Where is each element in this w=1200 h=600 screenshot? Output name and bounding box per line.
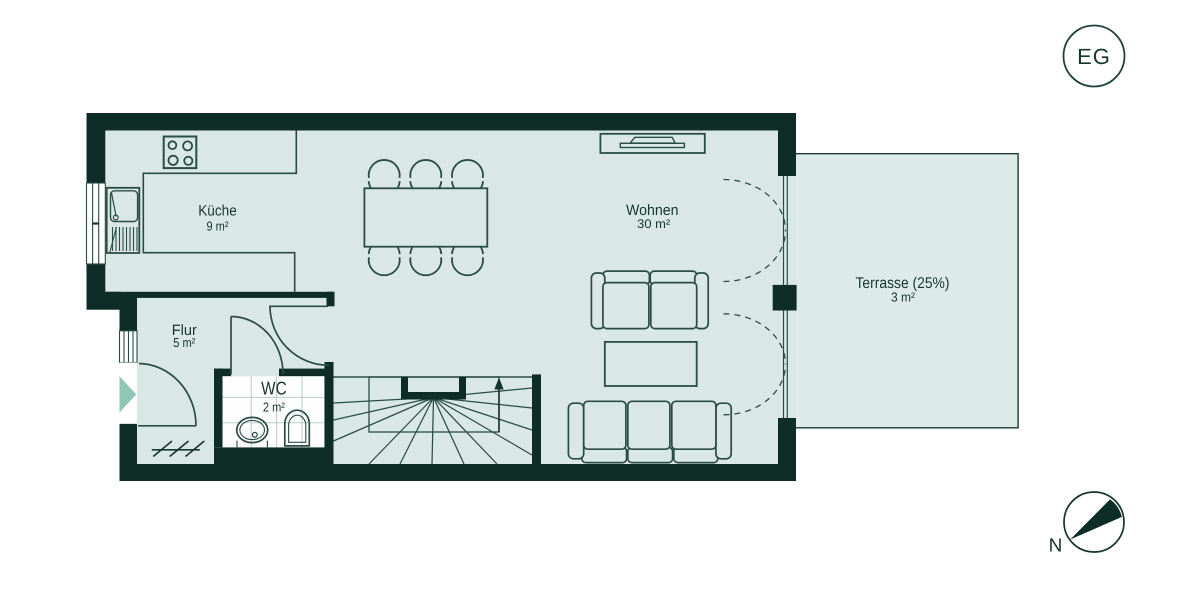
svg-text:N: N xyxy=(1049,536,1063,557)
svg-text:EG: EG xyxy=(1077,44,1111,69)
svg-text:5 m²: 5 m² xyxy=(173,335,196,350)
svg-text:2 m²: 2 m² xyxy=(263,400,286,415)
svg-text:HKV: HKV xyxy=(423,392,445,404)
svg-text:WC: WC xyxy=(261,378,287,399)
svg-text:9 m²: 9 m² xyxy=(207,219,230,234)
svg-text:3 m²: 3 m² xyxy=(891,290,916,305)
svg-text:30 m²: 30 m² xyxy=(637,217,670,231)
svg-text:Küche: Küche xyxy=(198,203,237,220)
